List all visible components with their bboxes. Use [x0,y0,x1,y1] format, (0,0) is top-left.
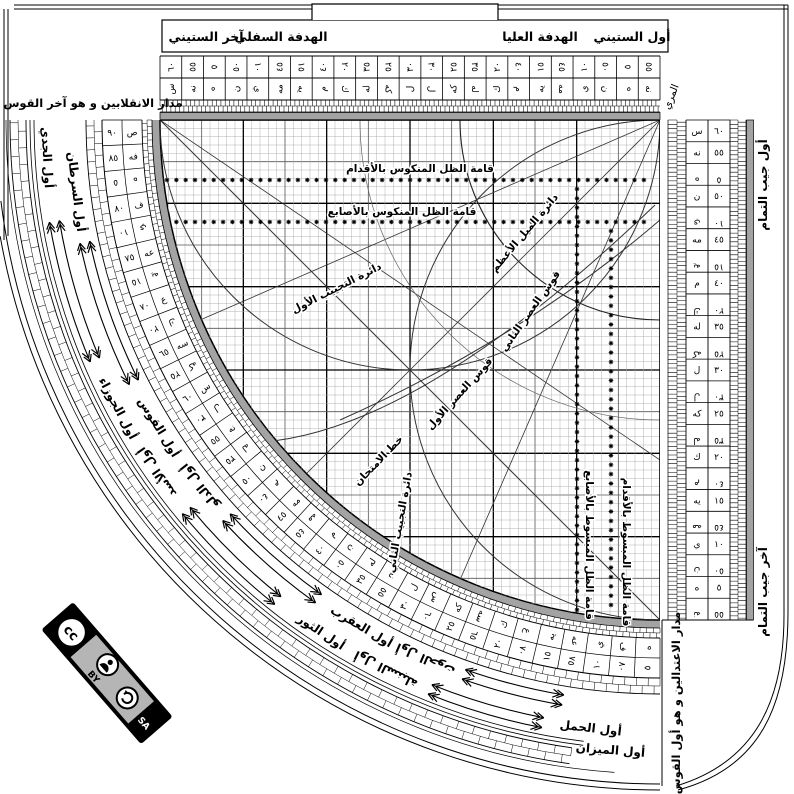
arc-scale-letter: ي [139,222,148,233]
top-scale-number: ٦٠ [167,62,177,72]
arc-scale-number: ٢٠ [147,322,160,335]
top-scale-number: ٢٠ [339,62,349,72]
top-scale-number: ٣٠ [426,62,436,72]
right-scale-letter: له [693,435,701,445]
arc-scale-number: ١٥ [130,275,142,287]
sine-quadrant-diagram: آخر الستينيالهدفة السفليالهدفة العلياأول… [0,0,794,794]
arc-scale-letter: له [366,557,379,569]
top-scale-letter: ي [252,85,262,92]
zodiac-label: أول الدلو [177,460,224,513]
arc-scale-number: ٥ [112,177,118,188]
right-scale-number: ٢٥ [714,409,724,419]
arc-scale-number: ٦٥ [158,347,171,360]
right-scale-letter: يه [693,261,701,271]
grid-label: قوس العصر الأول [424,355,496,433]
sexagesimal-scale-top: ٦٠س٥٥نه٥ه٥٠ن١٠ي٤٥مه١٥يه٤٠م٢٠ك٣٥له٢٥كه٣٠ل… [160,56,660,120]
top-scale-number: ٤٠ [319,62,329,72]
right-scale-number: ٤٥ [714,236,724,246]
arc-scale-letter: فه [128,152,138,163]
arc-scale-letter: س [198,381,213,395]
arc-scale-number: ٨٥ [108,154,119,165]
arc-scale-number: ٨٠ [114,203,125,214]
zodiac-label: أول الجدي [37,126,57,188]
arc-scale-number: ٧٥ [565,655,576,666]
arc-scale-letter: عه [568,635,580,647]
grid-label: قامة الظل المبسوط بالأصابع [583,470,596,620]
zodiac-tracks: أول الجديأول الجوزاءأول الأسدأول الثورأو… [37,126,645,760]
right-scale-number: ٢٠ [714,305,724,315]
arc-scale-letter: يه [150,269,160,281]
quadrant-svg: آخر الستينيالهدفة السفليالهدفة العلياأول… [0,0,794,794]
label-cos-start: أول جيب التمام [755,139,771,230]
right-scale-number: ٣٥ [714,323,724,333]
right-scale-number: ١٥ [714,496,724,506]
right-scale-letter: ن [694,566,701,576]
zodiac-arrow [230,514,321,595]
arc-scale-number: ٩٠ [107,129,117,139]
arc-scale-number: ٣٥ [223,453,237,467]
arc-scale-letter: ص [127,128,138,138]
label-hadafa-sufla: الهدفة السفلي [234,29,327,44]
right-scale-number: ٢٠ [714,453,724,463]
arc-scale-number: ٤٥ [275,510,289,524]
arc-scale-number: ٥٥ [209,434,223,448]
label-muri: المري [661,82,682,111]
top-scale-number: ١٥ [295,62,305,72]
top-scale-letter: مه [276,84,286,94]
arc-scale-number: ٢٥ [445,620,458,633]
arc-scale-letter: عه [143,248,155,260]
arc-scale-letter: ل [409,582,421,592]
label-hadafa-ulya: الهدفة العليا [502,29,578,44]
top-scale-number: ٣٥ [363,62,373,72]
right-scale-letter: ي [693,540,700,550]
top-scale-letter: كه [382,84,392,94]
right-scale-letter: ن [694,192,701,202]
arc-scale-letter: يه [546,632,557,642]
top-scale-letter: ه [623,86,633,91]
arc-scale-number: ٧٥ [124,253,136,265]
zodiac-label: أول الحمل [559,717,623,740]
arc-scale-number: ٥٠ [332,557,346,571]
label-solstice-circle: مدار الانقلابين و هو آخر القوس [4,96,183,111]
right-scale-number: ٥٥ [714,149,724,159]
top-scale-letter: ك [493,85,503,92]
right-scale-letter: ه [695,583,700,593]
top-scale-number: ٥٠ [232,62,242,72]
arc-scale-number: ٤٥ [292,526,306,540]
arc-scale-letter: ن [345,542,357,553]
arc-scale-number: ٧٠ [515,644,527,656]
right-scale-number: ٣٠ [714,366,724,376]
top-scale-letter: س [167,84,177,95]
frame-right [784,5,788,615]
zodiac-arrow [465,670,563,695]
grid-label: قامة الظل المنكوس بالأقدام [346,162,494,175]
right-tick-strip [668,120,746,618]
arc-scale-number: ٢٠ [493,638,505,650]
grid-label: قامة الظل المبسوط بالأقدام [620,478,633,627]
top-scale-letter: ه [208,87,218,92]
right-scale-letter: م [694,479,700,489]
top-scale-number: ٥ [208,65,218,70]
right-scale-number: ٣٥ [714,435,724,445]
top-scale-number: ٣٥ [469,62,479,72]
right-scale-number: ٢٥ [714,348,724,358]
right-scale-number: ١٥ [714,261,724,271]
arc-scale-number: ١٥ [542,650,554,662]
right-scale-number: ٥ [716,174,721,184]
arc-scale-letter: ل [212,401,223,413]
grid-label: دائرة التجييب الأول [289,259,384,316]
arc-scale-letter: س [428,590,442,604]
grid-label-group: قامة الظل المنكوس بالأقدامقامة الظل المن… [289,162,633,627]
right-scale-letter: يه [693,496,701,506]
sight-vane-tab [312,4,498,20]
top-scale-letter: له [469,85,479,93]
top-scale-number: ١٠ [580,62,590,72]
top-scale-number: ٤٠ [513,62,523,72]
arc-scale-number: ٦٠ [420,609,433,622]
top-scale-letter: له [363,85,373,93]
cosine-scale-right: س٦٠نه٥٥ه٥ن٥٠ي١٠مه٤٥يه١٥م٤٠ك٢٠له٣٥كه٢٥ل٣٠… [662,120,754,620]
arc-scale-number: ٧٠ [139,301,151,314]
right-scale-letter: كه [692,348,702,358]
top-scale-number: ٥٠ [600,62,610,72]
top-scale-number: ١٠ [252,62,262,72]
right-scale-number: ٥٠ [714,192,724,202]
label-akhir-sittini: آخر الستيني [168,29,244,44]
right-scale-number: ٣٠ [714,392,724,402]
right-scale-letter: ي [693,218,700,228]
arc-scale-letter: له [239,441,251,454]
arc-scale-number: ٢٥ [168,368,181,381]
top-scale-letter: م [319,86,329,92]
right-scale-letter: م [694,279,700,289]
zodiac-label: أول الجوزاء [95,374,141,442]
right-scale-letter: ل [694,392,701,402]
top-scale-number: ٥٥ [189,62,199,72]
arc-scale-letter: سه [175,338,190,352]
arc-scale-number: ٣٠ [399,599,412,612]
right-scale-number: ٤٠ [714,279,724,289]
zodiac-arrow [59,221,99,359]
arc-scale-number: ٨٠ [616,661,627,671]
top-scale-number: ٤٥ [276,62,286,72]
top-scale-letter: ن [600,86,610,93]
arc-scale-number: ١٠ [592,659,603,670]
arc-scale-number: ٦٠ [181,392,194,406]
right-scale-letter: نه [693,609,700,619]
frame-corner [676,612,788,790]
arc-scale-letter: مه [306,511,320,525]
label-cos-end: آخر جيب التمام [755,546,771,637]
right-scale-letter: له [693,323,701,333]
right-scale-letter: س [692,127,703,137]
arc-scale-letter: ع [521,627,532,635]
right-scale-number: ٤٥ [714,522,724,532]
zodiac-label: أول السرطان [64,151,90,233]
arc-scale-letter: ه [132,175,138,186]
top-scale-letter: ن [232,86,242,93]
right-scale-letter: ل [694,366,701,376]
top-scale-number: ٢٠ [493,62,503,72]
top-scale-letter: كه [449,84,459,94]
top-scale-letter: ل [426,86,436,93]
arc-scale-number: ٤٠ [256,491,270,505]
arc-scale-letter: كه [185,359,198,372]
arc-scale-letter: ه [644,645,654,650]
right-scale-letter: نه [693,149,700,159]
right-scale-number: ٥٠ [714,566,724,576]
top-scale-letter: م [513,86,523,92]
right-scale-number: ٤٠ [714,479,724,489]
arc-scale-letter: نه [226,423,238,435]
arc-scale-number: ٣٠ [194,412,208,426]
top-scale-letter: مه [556,84,566,94]
top-scale-number: ٢٥ [449,62,459,72]
arc-scale-number: ٦٥ [467,629,480,642]
arc-scale-letter: م [327,529,338,540]
top-scale-letter: نه [189,85,199,92]
top-scale-letter: نه [643,85,653,92]
top-scale-number: ٥ [623,64,633,69]
arc-scale-letter: ي [595,641,606,649]
arc-scale-number: ٤٠ [314,543,328,557]
arc-scale-letter: ف [617,642,628,652]
right-scale-letter: ك [693,453,700,463]
arc-scale-number: ٥٠ [240,474,254,488]
arc-scale-letter: ك [166,315,177,327]
arc-scale-letter: سه [473,609,487,624]
arc-scale-number: ٥٥ [375,585,389,599]
top-scale-letter: ي [580,85,590,92]
top-scale-letter: ك [339,85,349,92]
right-scale-number: ١٠ [714,218,724,228]
right-gray-band [747,120,754,620]
sight-bar: آخر الستينيالهدفة السفليالهدفة العلياأول… [162,4,670,52]
right-scale-letter: ك [693,305,700,315]
arc-scale-letter: كه [453,601,466,614]
asr-first-arc [262,205,655,442]
top-scale-number: ١٥ [536,62,546,72]
arc-scale-letter: مه [289,495,303,509]
zodiac-arrow [428,694,542,728]
arc-scale-number: ٣٥ [355,573,369,587]
zodiac-label: أول الميزان [575,739,646,760]
top-gray-band [160,113,660,120]
arc-scale-number: ١٠ [118,226,130,238]
right-scale-number: ٥٥ [714,609,724,619]
right-scale-number: ٦٠ [714,127,724,137]
cc-by-sa-badge: ccBYSA [41,602,172,744]
arc-scale-letter: ن [257,461,269,473]
right-scale-letter: مه [692,522,702,532]
label-awwal-sittini: أول الستيني [594,28,671,44]
arc-scale-number: ٥ [643,665,653,670]
grid-label: قوس العصر الثاني [498,268,563,354]
top-scale-number: ٣٠ [406,62,416,72]
grid-label: قامة الظل المنكوس بالأصابع [328,205,477,218]
top-scale-number: ٤٥ [556,62,566,72]
label-equinox-circle: مدار الاعتدالين و هو أول القوس [668,612,684,794]
right-scale-number: ١٠ [714,540,724,550]
right-scale-letter: مه [692,236,702,246]
top-scale-letter: ل [406,86,416,93]
right-scale-letter: ه [694,174,699,184]
top-scale-number: ٥٥ [643,62,653,72]
radial-line [202,120,661,319]
right-scale-letter: كه [692,409,702,419]
top-scale-letter: يه [536,85,546,93]
right-scale-number: ٥ [717,583,722,593]
arc-scale-letter: ع [159,294,168,305]
top-scale-number: ٢٥ [382,62,392,72]
top-scale-letter: يه [295,85,305,93]
arc-scale-letter: م [272,478,283,489]
arc-scale-letter: ف [134,200,145,211]
arc-scale-letter: ك [499,620,511,630]
